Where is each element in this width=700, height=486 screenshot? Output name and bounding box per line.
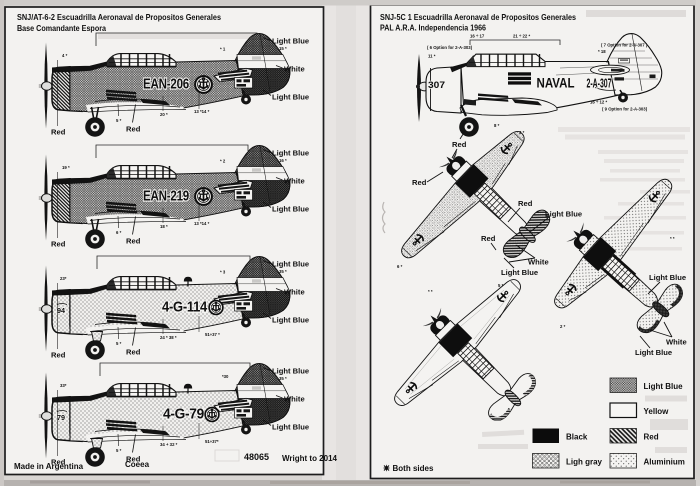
svg-text:SNJ-5C 1 Escuadrilla Aeronaval: SNJ-5C 1 Escuadrilla Aeronaval de Propos… xyxy=(380,12,576,22)
svg-text:2 *: 2 * xyxy=(560,324,566,329)
svg-text:5 *: 5 * xyxy=(116,341,122,346)
svg-text:23*: 23* xyxy=(60,276,67,281)
svg-text:5 *: 5 * xyxy=(116,448,122,453)
svg-text:Red: Red xyxy=(518,199,533,208)
svg-text:Both sides: Both sides xyxy=(393,464,434,473)
svg-text:* 18: * 18 xyxy=(598,49,606,54)
svg-text:4-G-114: 4-G-114 xyxy=(162,299,208,316)
svg-text:White: White xyxy=(284,65,305,74)
svg-text:5 *: 5 * xyxy=(498,283,504,288)
svg-text:Red: Red xyxy=(126,237,141,246)
svg-text:3 *: 3 * xyxy=(519,130,525,135)
svg-text:EAN-219: EAN-219 xyxy=(143,188,189,205)
svg-text:Light Blue: Light Blue xyxy=(272,149,309,158)
svg-text:35 *: 35 * xyxy=(279,376,287,381)
svg-text:15 *: 15 * xyxy=(279,46,287,51)
svg-text:6 *: 6 * xyxy=(397,264,403,269)
svg-text:2-A-307: 2-A-307 xyxy=(587,76,612,91)
svg-text:Light Blue: Light Blue xyxy=(635,348,672,357)
svg-text:Red: Red xyxy=(126,348,141,357)
svg-text:6 *: 6 * xyxy=(116,230,122,235)
svg-text:Light Blue: Light Blue xyxy=(272,316,309,325)
svg-text:* *: * * xyxy=(428,289,433,294)
svg-text:( 6 Option for 2-A-303): ( 6 Option for 2-A-303) xyxy=(427,45,473,50)
svg-text:Coeea: Coeea xyxy=(125,460,150,469)
svg-text:Base Comandante Espora: Base Comandante Espora xyxy=(17,23,106,33)
svg-text:Light Blue: Light Blue xyxy=(272,205,309,214)
svg-text:Light Blue: Light Blue xyxy=(272,260,309,269)
svg-text:* 3: * 3 xyxy=(220,270,226,275)
svg-text:Made in Argentina: Made in Argentina xyxy=(14,462,84,471)
svg-text:16 ÷ 17: 16 ÷ 17 xyxy=(470,34,485,39)
svg-text:Light Blue: Light Blue xyxy=(272,367,309,376)
svg-text:13 *14 *: 13 *14 * xyxy=(194,221,210,226)
svg-text:4-G-79: 4-G-79 xyxy=(163,406,204,423)
svg-text:Red: Red xyxy=(51,240,66,249)
svg-text:33*: 33* xyxy=(60,383,67,388)
svg-text:White: White xyxy=(284,288,305,297)
svg-text:Red: Red xyxy=(644,433,659,442)
svg-text:79: 79 xyxy=(57,413,65,422)
svg-text:Light Blue: Light Blue xyxy=(272,423,309,432)
svg-text:8 *: 8 * xyxy=(494,123,500,128)
svg-text:Red: Red xyxy=(412,178,427,187)
svg-text:* 1: * 1 xyxy=(220,47,226,52)
svg-text:16 ÷ 12 *: 16 ÷ 12 * xyxy=(590,100,607,105)
svg-text:NAVAL: NAVAL xyxy=(537,76,575,91)
svg-text:Ligh gray: Ligh gray xyxy=(566,458,603,467)
svg-text:13 *14 *: 13 *14 * xyxy=(194,109,210,114)
svg-text:Red: Red xyxy=(126,125,141,134)
svg-text:Black: Black xyxy=(566,433,588,442)
svg-text:White: White xyxy=(284,395,305,404)
svg-text:19 *: 19 * xyxy=(62,165,70,170)
svg-text:White: White xyxy=(666,338,687,347)
svg-text:Light Blue: Light Blue xyxy=(272,37,309,46)
svg-text:48065: 48065 xyxy=(244,452,269,462)
svg-text:* *: * * xyxy=(670,236,675,241)
svg-text:( 7 Option for 2-A-307 ): ( 7 Option for 2-A-307 ) xyxy=(601,43,648,48)
svg-text:307: 307 xyxy=(428,80,445,91)
svg-text:Red: Red xyxy=(51,128,66,137)
svg-text:5 *: 5 * xyxy=(116,118,122,123)
svg-text:20 *: 20 * xyxy=(160,112,168,117)
svg-text:Red: Red xyxy=(452,140,467,149)
svg-text:24 * 38 *: 24 * 38 * xyxy=(160,335,177,340)
svg-text:Light Blue: Light Blue xyxy=(272,93,309,102)
svg-text:Yellow: Yellow xyxy=(644,407,670,416)
svg-text:PAL A.R.A. Independencia 1966: PAL A.R.A. Independencia 1966 xyxy=(380,23,486,33)
svg-text:Red: Red xyxy=(51,351,66,360)
svg-text:SNJ/AT-6-2 Escuadrilla Aerona: SNJ/AT-6-2 Escuadrilla Aeronaval de Prop… xyxy=(17,12,221,22)
svg-text:* 2: * 2 xyxy=(220,159,226,164)
svg-text:11 *: 11 * xyxy=(428,54,436,59)
svg-text:White: White xyxy=(284,177,305,186)
svg-text:4 *: 4 * xyxy=(62,53,68,58)
svg-text:Aluminium: Aluminium xyxy=(644,458,685,467)
svg-text:Red: Red xyxy=(481,234,496,243)
svg-text:Light Blue: Light Blue xyxy=(644,382,684,391)
svg-text:94: 94 xyxy=(57,306,65,315)
svg-text:16 *: 16 * xyxy=(279,158,287,163)
svg-text:21 ÷ 22 *: 21 ÷ 22 * xyxy=(513,34,530,39)
svg-text:EAN-206: EAN-206 xyxy=(143,76,189,93)
svg-text:Light Blue: Light Blue xyxy=(501,268,538,277)
svg-text:34 + 32 *: 34 + 32 * xyxy=(160,442,178,447)
svg-text:Light Blue: Light Blue xyxy=(545,210,582,219)
svg-text:Light Blue: Light Blue xyxy=(649,273,686,282)
svg-text:( 9 Option for 2-A-303): ( 9 Option for 2-A-303) xyxy=(602,107,648,112)
svg-text:18 *: 18 * xyxy=(160,224,168,229)
svg-text:35 *: 35 * xyxy=(279,269,287,274)
svg-text:51÷37*: 51÷37* xyxy=(205,439,219,444)
svg-text:51÷37 *: 51÷37 * xyxy=(205,332,220,337)
svg-text:*30: *30 xyxy=(222,374,229,379)
svg-text:Wright to 2014: Wright to 2014 xyxy=(282,454,338,463)
